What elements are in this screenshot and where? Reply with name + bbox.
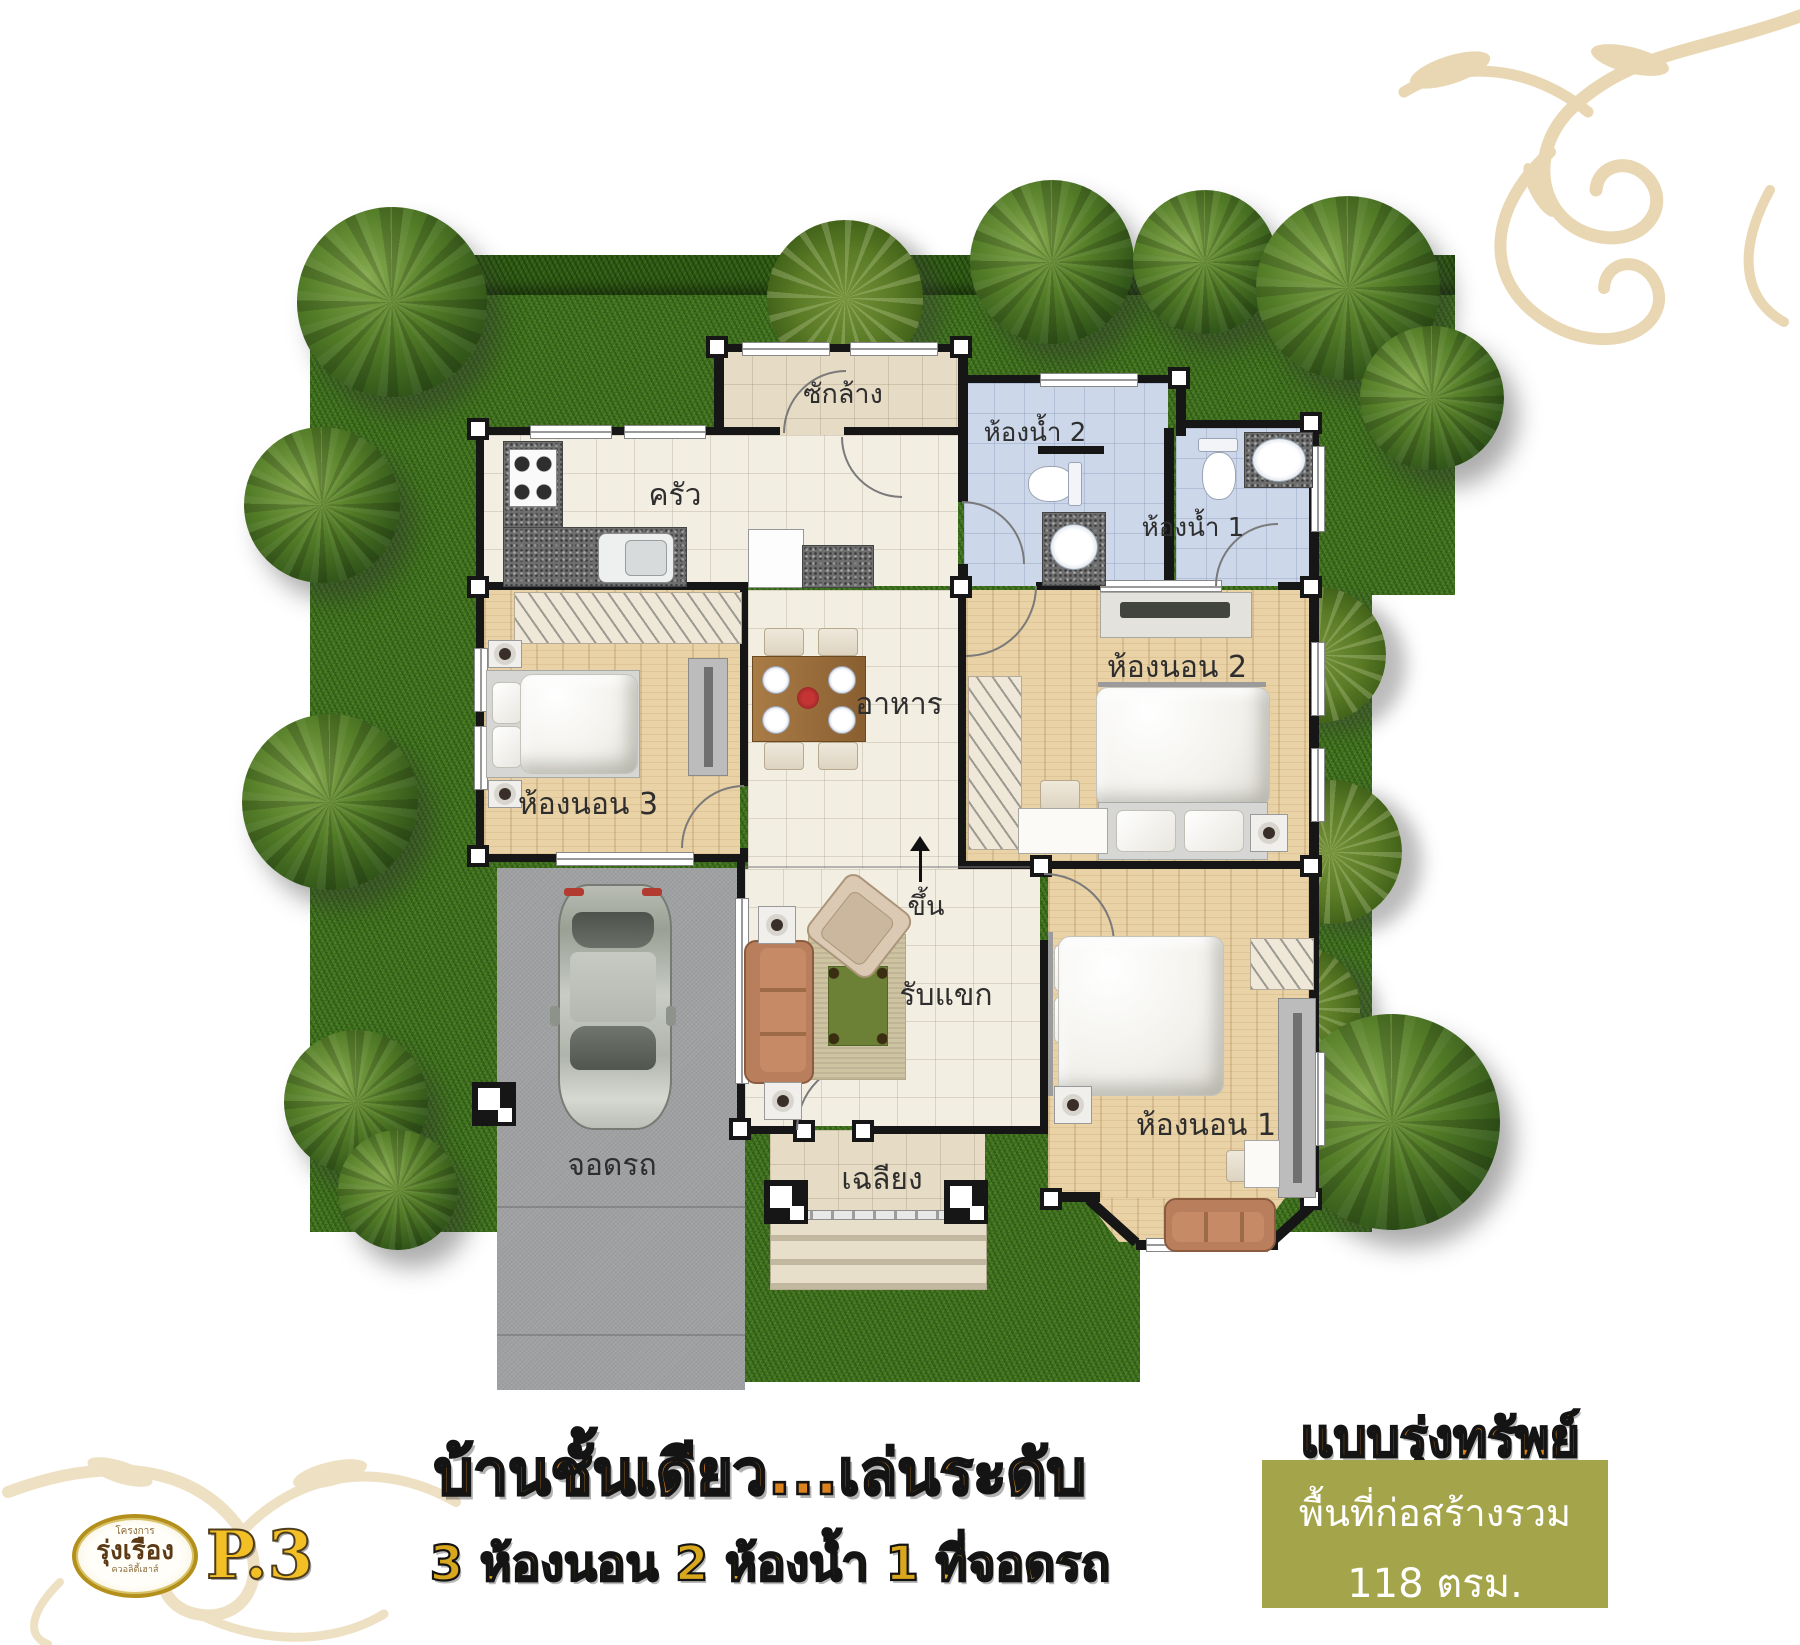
logo-brand-name: รุ่งเรือง	[76, 1538, 194, 1564]
wardrobe	[1278, 998, 1316, 1198]
bed-rail	[1048, 932, 1053, 1096]
plate	[762, 706, 790, 734]
tree	[338, 1130, 458, 1250]
area-value: 118 ตรม.	[1262, 1551, 1608, 1615]
corner-post	[467, 418, 489, 440]
bathroom-sink	[1050, 524, 1098, 570]
window	[1311, 748, 1325, 822]
rear-window	[572, 912, 654, 948]
room-label-laundry: ซักล้าง	[763, 372, 923, 415]
window	[1040, 373, 1138, 387]
pillow	[1116, 810, 1176, 852]
area-label: พื้นที่ก่อสร้างรวม	[1262, 1482, 1608, 1543]
tree	[297, 207, 487, 397]
fan-unit	[488, 640, 522, 668]
room-label-bathroom2: ห้องน้ำ 2	[955, 412, 1115, 453]
corner-post	[706, 336, 728, 358]
window	[742, 342, 830, 356]
room-label-porch: เฉลียง	[802, 1156, 962, 1203]
toilet	[1202, 452, 1236, 500]
wall	[866, 1126, 1048, 1134]
pillow	[1184, 810, 1244, 852]
closet	[1250, 938, 1314, 990]
pillow	[492, 682, 522, 724]
floor-plan-page: ซักล้าง ห้องน้ำ 2 ห้องน้ำ 1 ครัว อาหาร ห…	[0, 0, 1800, 1645]
logo-tagline: ควอลิตี้เฮาส์	[76, 1566, 194, 1575]
sofa-cushions	[1172, 1212, 1264, 1242]
stairs-arrow-head	[910, 836, 930, 851]
kitchen-counter	[802, 545, 874, 588]
wall	[844, 427, 966, 435]
desk-chair	[1040, 780, 1080, 810]
corner-post	[1168, 367, 1190, 389]
pillow	[492, 726, 522, 768]
stove	[509, 449, 557, 507]
dining-chair	[818, 742, 858, 770]
driveway-seam	[497, 1206, 745, 1208]
window	[1311, 446, 1325, 532]
tail-light	[564, 888, 584, 896]
bathroom-sink	[1252, 438, 1306, 482]
window	[530, 425, 612, 439]
side-mirror	[550, 1006, 560, 1026]
room-label-carpark: จอดรถ	[532, 1142, 692, 1189]
wall	[1040, 940, 1048, 1126]
corner-post	[729, 1118, 751, 1140]
corner-post	[852, 1120, 874, 1142]
window	[850, 342, 938, 356]
refrigerator	[748, 529, 804, 588]
features-text: 3 ห้องนอน 2 ห้องน้ำ 1 ที่จอดรถ	[390, 1526, 1150, 1602]
table-centerpiece	[797, 687, 819, 709]
window	[1100, 580, 1222, 592]
corner-post	[1040, 1188, 1062, 1210]
project-logo: โครงการ รุ่งเรือง ควอลิตี้เฮาส์	[72, 1514, 198, 1598]
corner-post	[467, 576, 489, 598]
sofa-cushions	[760, 948, 806, 1072]
stairs-up-label: ขึ้น	[886, 884, 966, 927]
plate	[762, 666, 790, 694]
dining-chair	[764, 742, 804, 770]
room-label-living: รับแขก	[866, 972, 1026, 1019]
tree	[242, 714, 418, 890]
corner-post	[950, 336, 972, 358]
tree	[1360, 326, 1504, 470]
wall	[958, 590, 966, 869]
tv	[1120, 602, 1230, 618]
room-label-kitchen: ครัว	[595, 472, 755, 519]
room-label-bedroom3: ห้องนอน 3	[488, 781, 688, 828]
tail-light	[642, 888, 662, 896]
gate-post	[472, 1082, 516, 1126]
car-roof	[570, 952, 656, 1022]
wardrobe	[688, 658, 728, 776]
bed	[1096, 687, 1270, 807]
room-label-bathroom1: ห้องน้ำ 1	[1113, 507, 1273, 548]
tree	[244, 427, 400, 583]
corner-post	[950, 576, 972, 598]
corner-post	[1300, 576, 1322, 598]
window	[624, 425, 706, 439]
fan-unit	[1054, 1086, 1092, 1124]
duvet	[520, 674, 638, 774]
wall	[1176, 420, 1319, 428]
window	[556, 852, 694, 866]
wall	[476, 427, 484, 862]
wall	[714, 427, 780, 435]
bed	[1058, 936, 1224, 1096]
toilet-tank	[1198, 438, 1238, 452]
corner-post	[1300, 412, 1322, 434]
window	[1311, 642, 1325, 716]
tree	[970, 180, 1134, 344]
page-number: P.3	[206, 1516, 314, 1594]
corner-post	[1030, 855, 1052, 877]
toilet-tank	[1068, 462, 1082, 506]
dining-chair	[818, 628, 858, 656]
windshield	[570, 1026, 656, 1070]
fan-unit	[764, 1082, 802, 1120]
headline-text: บ้านชั้นเดียว...เล่นระดับ	[380, 1424, 1140, 1522]
kitchen-sink	[598, 533, 674, 583]
desk	[1018, 808, 1108, 854]
fan-unit	[1250, 814, 1288, 852]
corner-post	[467, 845, 489, 867]
tree	[1133, 190, 1277, 334]
room-label-dining: อาหาร	[819, 681, 979, 728]
split-level-step-line	[745, 866, 1040, 868]
corner-post	[793, 1120, 815, 1142]
room-label-bedroom1: ห้องนอน 1	[1106, 1102, 1306, 1149]
closet	[514, 592, 742, 644]
area-info-box: พื้นที่ก่อสร้างรวม 118 ตรม.	[1262, 1460, 1608, 1608]
driveway-seam	[497, 1334, 745, 1336]
side-mirror	[666, 1006, 676, 1026]
fan-unit	[758, 906, 796, 944]
wall	[740, 848, 748, 862]
corner-post	[1300, 855, 1322, 877]
porch-steps	[770, 1216, 987, 1290]
stairs-arrow	[919, 850, 922, 882]
room-label-bedroom2: ห้องนอน 2	[1077, 644, 1277, 691]
dining-chair	[764, 628, 804, 656]
wall	[737, 862, 745, 898]
car	[558, 884, 668, 1126]
